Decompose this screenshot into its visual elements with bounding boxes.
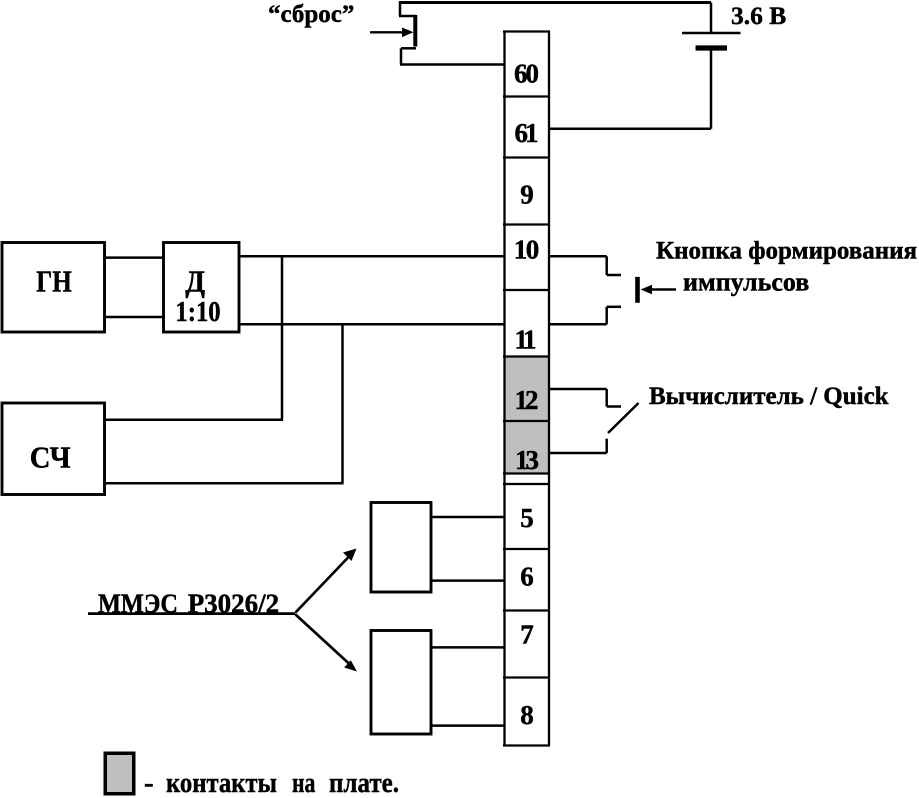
svg-text:Р3026/2: Р3026/2 (188, 589, 280, 619)
svg-text:8: 8 (520, 700, 534, 730)
svg-text:11: 11 (515, 325, 537, 355)
svg-text:СЧ: СЧ (30, 440, 71, 474)
svg-text:1:10: 1:10 (175, 295, 220, 327)
svg-text:60: 60 (514, 59, 539, 89)
svg-text:13: 13 (515, 445, 539, 475)
svg-text:Кнопка формирования: Кнопка формирования (656, 237, 917, 264)
svg-text:7: 7 (520, 620, 534, 650)
svg-text:6: 6 (520, 562, 534, 592)
svg-text:Вычислитель / Quick: Вычислитель / Quick (649, 383, 889, 410)
svg-text:Д: Д (185, 265, 205, 299)
svg-text:-: - (144, 767, 154, 798)
svg-text:12: 12 (515, 385, 539, 415)
svg-text:контакты: контакты (166, 766, 277, 798)
svg-text:10: 10 (514, 235, 540, 265)
svg-text:ГН: ГН (36, 265, 72, 299)
svg-text:ММЭС: ММЭС (98, 588, 178, 618)
svg-text:3.6 В: 3.6 В (731, 1, 786, 30)
svg-text:плате.: плате. (329, 766, 399, 798)
svg-text:5: 5 (520, 503, 534, 533)
svg-text:“сброс”: “сброс” (268, 1, 354, 28)
svg-text:9: 9 (520, 180, 534, 210)
svg-text:61: 61 (515, 118, 539, 148)
svg-text:импульсов: импульсов (683, 268, 809, 297)
svg-text:на: на (292, 766, 316, 798)
